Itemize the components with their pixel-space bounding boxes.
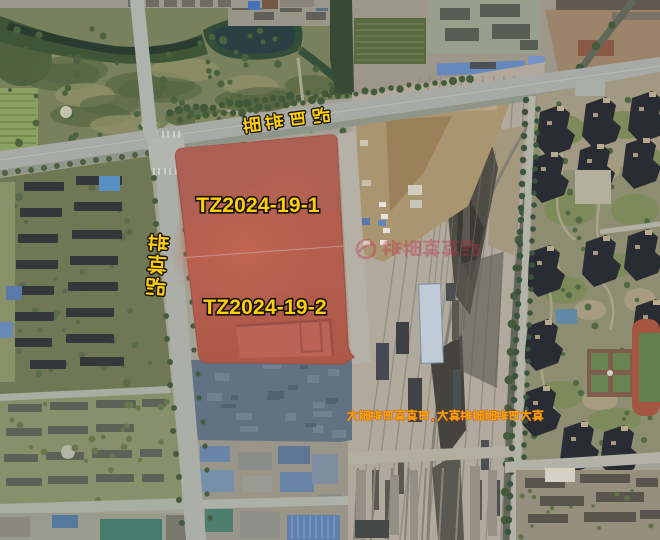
svg-text:TZ2024-19-2: TZ2024-19-2	[203, 296, 327, 319]
svg-text:TZ2024-19-1: TZ2024-19-1	[196, 194, 320, 217]
